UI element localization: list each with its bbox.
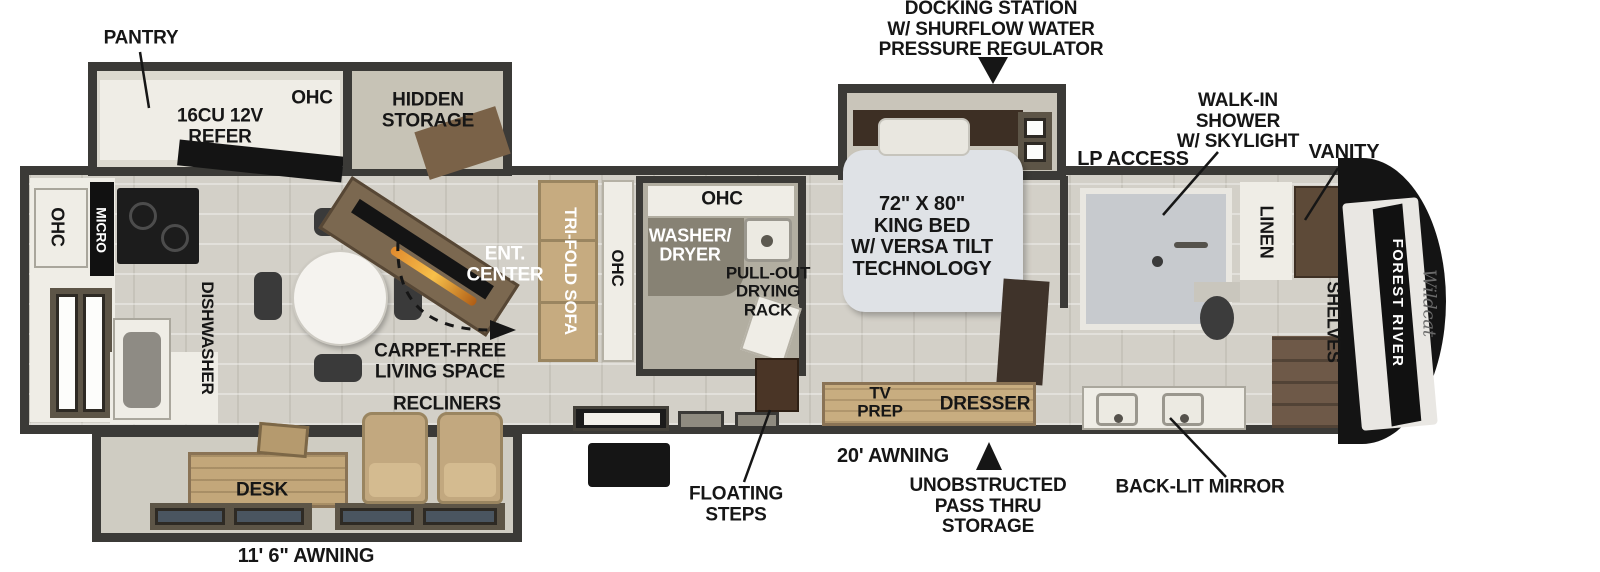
label-washer-dryer: WASHER/ DRYER [649,227,732,266]
label-docking-station: DOCKING STATION W/ SHURFLOW WATER PRESSU… [879,0,1104,61]
toilet-bowl [1200,296,1234,340]
entry-door [755,358,799,412]
label-tri-fold-sofa: TRI-FOLD SOFA [561,207,579,335]
label-dishwasher: DISHWASHER [198,281,216,394]
label-awning-rear: 11' 6" AWNING [238,546,375,568]
label-ent-center: ENT. CENTER [467,244,544,285]
desk-window [150,503,312,530]
label-ohc-kitchen: OHC [291,89,333,110]
recliner-window [335,503,505,530]
label-ohc-sofa: OHC [608,249,626,286]
bath-sink-right [1162,393,1204,426]
label-pantry: PANTRY [104,29,179,50]
laundry-sink [744,218,792,262]
bathroom-wall [1060,176,1068,308]
label-hidden-storage: HIDDEN STORAGE [382,90,474,131]
forest-river-logo: FOREST RIVER [1389,239,1405,368]
label-back-lit-mirror: BACK-LIT MIRROR [1115,478,1284,499]
label-desk: DESK [236,481,288,502]
docking-station-arrow-icon [978,57,1008,84]
slide-divider-wall [343,71,352,169]
label-linen: LINEN [1256,205,1275,258]
recliner-right [437,412,503,504]
desk-chair [257,422,310,458]
label-micro: MICRO [93,207,108,253]
label-pass-thru: UNOBSTRUCTED PASS THRU STORAGE [910,476,1067,538]
label-ohc-laundry: OHC [701,190,743,211]
range-cooktop [117,188,199,264]
dining-chair-left [254,272,282,320]
label-awning-main: 20' AWNING [837,446,949,468]
step-mid [678,411,724,430]
pass-thru-arrow-icon [976,442,1002,470]
shower-head [1174,242,1208,248]
label-shelves: SHELVES [1323,281,1342,362]
bedroom-window [1018,112,1052,170]
label-drying-rack: PULL-OUT DRYING RACK [726,264,810,319]
bedroom-tv-wardrobe [996,279,1049,386]
floorplan-canvas: DOCKING STATION W/ SHURFLOW WATER PRESSU… [0,0,1600,572]
kitchen-window [50,288,112,418]
label-ohc-rear: OHC [47,207,66,246]
label-walk-in-shower: WALK-IN SHOWER W/ SKYLIGHT [1177,91,1299,153]
label-floating-steps: FLOATING STEPS [689,484,783,525]
label-carpet-free: CARPET-FREE LIVING SPACE [374,341,506,382]
bed-pillow [878,118,970,156]
label-dresser: DRESSER [940,395,1030,416]
step-small [735,412,779,429]
kitchen-sink [113,318,171,420]
bath-sink-left [1096,393,1138,426]
recliner-left [362,412,428,504]
dining-chair-bottom [314,354,362,382]
shower-drain [1152,256,1163,267]
step-large [573,406,669,431]
exterior-step-box [588,443,670,487]
model-script-logo: Wildcat [1419,269,1438,337]
label-lp-access: LP ACCESS [1077,149,1189,171]
label-tv-prep: TV PREP [857,385,903,422]
label-refer: 16CU 12V REFER [177,106,263,147]
label-vanity: VANITY [1309,142,1380,164]
bath-sink-counter [1082,386,1246,430]
label-king-bed: 72" X 80" KING BED W/ VERSA TILT TECHNOL… [851,194,993,280]
label-recliners: RECLINERS [393,395,501,416]
